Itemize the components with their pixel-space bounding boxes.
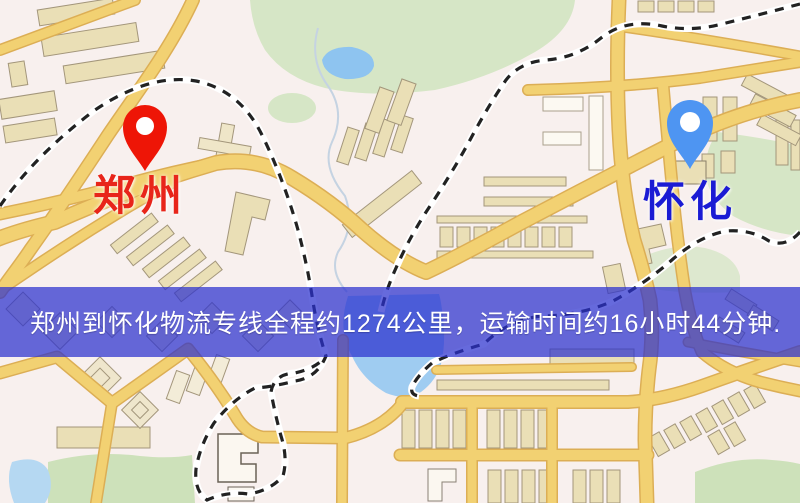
pin-body xyxy=(123,105,167,171)
origin-pin-icon xyxy=(122,104,168,172)
origin-label: 郑州 xyxy=(40,176,240,218)
destination-label: 怀化 xyxy=(590,182,790,224)
pin-hole xyxy=(136,117,154,135)
pin-body xyxy=(667,100,713,169)
destination-pin-icon xyxy=(666,99,714,170)
destination-marker[interactable] xyxy=(666,99,714,175)
origin-marker[interactable] xyxy=(122,104,168,177)
pin-hole xyxy=(680,112,700,132)
map-screenshot: 郑州 怀化 郑州到怀化物流专线全程约1274公里，运输时间约16小时44分钟. xyxy=(0,0,800,503)
route-banner-text: 郑州到怀化物流专线全程约1274公里，运输时间约16小时44分钟. xyxy=(0,304,781,340)
map-background xyxy=(0,0,800,503)
route-banner: 郑州到怀化物流专线全程约1274公里，运输时间约16小时44分钟. xyxy=(0,287,800,357)
